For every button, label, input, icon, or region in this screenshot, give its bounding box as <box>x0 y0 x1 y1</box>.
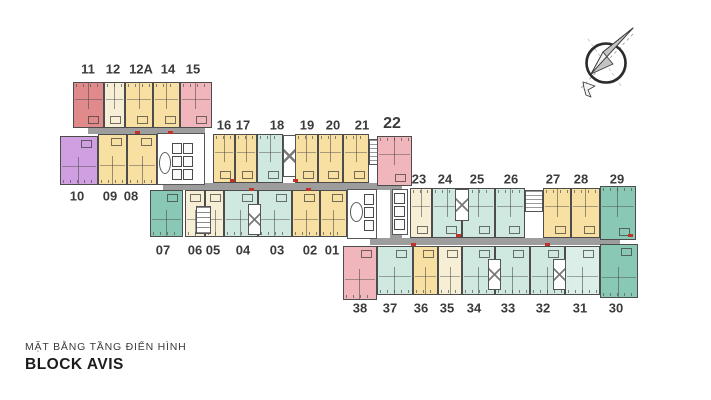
stair-shaft <box>196 206 211 234</box>
unit-01 <box>320 190 347 237</box>
bathroom-outline <box>110 116 121 124</box>
elevator-cab <box>172 169 182 180</box>
door-mark <box>135 131 140 134</box>
room-divider-h <box>127 99 151 100</box>
unit-label-34: 34 <box>467 301 481 316</box>
room-divider-h <box>155 99 178 100</box>
room-divider-h <box>602 206 634 207</box>
elevator-cab <box>172 156 182 167</box>
unit-35 <box>438 246 462 295</box>
unit-label-28: 28 <box>574 172 588 187</box>
unit-12A <box>125 82 153 128</box>
unit-19 <box>295 134 318 183</box>
unit-09 <box>98 134 127 185</box>
bathroom-outline <box>417 226 428 234</box>
elevator-cab <box>172 143 182 154</box>
plan-title-block: MẶT BẰNG TẦNG ĐIỂN HÌNH BLOCK AVIS <box>25 341 187 374</box>
room-divider-h <box>106 99 123 100</box>
bathroom-outline <box>423 250 434 258</box>
room-divider <box>166 210 167 236</box>
room-divider-h <box>100 165 125 166</box>
bathroom-outline <box>81 140 92 148</box>
corridor <box>370 238 620 245</box>
room-divider <box>359 269 360 299</box>
room-divider <box>356 135 357 162</box>
stair-shaft <box>455 189 469 221</box>
unit-label-29: 29 <box>610 172 624 187</box>
bathroom-outline <box>396 250 407 258</box>
unit-15 <box>180 82 212 128</box>
door-mark <box>628 234 633 237</box>
unit-label-07: 07 <box>156 243 170 258</box>
room-divider-h <box>379 276 411 277</box>
room-divider <box>478 189 479 217</box>
unit-14 <box>153 82 180 128</box>
room-divider <box>195 83 196 109</box>
unit-22 <box>377 136 412 186</box>
room-divider-h <box>567 276 598 277</box>
bathroom-outline <box>584 226 595 234</box>
balcony-ticks <box>261 232 289 235</box>
unit-label-12A: 12A <box>129 62 153 77</box>
bathroom-outline <box>583 250 594 258</box>
door-mark <box>456 234 461 237</box>
room-divider-h <box>345 279 375 280</box>
room-divider-h <box>75 99 102 100</box>
unit-label-19: 19 <box>300 118 314 133</box>
room-divider-h <box>260 219 290 220</box>
bathroom-outline <box>328 171 339 179</box>
bathroom-outline <box>395 174 406 182</box>
room-divider <box>512 267 513 294</box>
unit-label-08: 08 <box>124 189 138 204</box>
room-divider <box>306 135 307 162</box>
unit-label-05: 05 <box>206 243 220 258</box>
balcony-ticks <box>346 295 374 298</box>
elevator-cab <box>394 206 405 217</box>
room-divider <box>306 210 307 236</box>
room-divider <box>88 83 89 109</box>
room-divider-h <box>182 99 210 100</box>
bathroom-outline <box>88 116 99 124</box>
unit-label-17: 17 <box>236 118 250 133</box>
room-divider <box>330 135 331 162</box>
unit-label-21: 21 <box>355 118 369 133</box>
room-divider <box>447 189 448 217</box>
compass-needle-shade <box>591 28 633 74</box>
room-divider <box>78 157 79 184</box>
unit-38 <box>343 246 377 300</box>
unit-label-32: 32 <box>536 301 550 316</box>
bathroom-outline <box>555 226 566 234</box>
room-divider <box>240 210 241 236</box>
room-divider-h <box>379 154 410 155</box>
room-divider-h <box>237 152 255 153</box>
room-divider <box>246 135 247 162</box>
unit-26 <box>495 188 525 238</box>
unit-18 <box>257 134 283 183</box>
unit-21 <box>343 134 369 183</box>
room-divider <box>114 83 115 109</box>
bathroom-outline <box>242 171 253 179</box>
bathroom-outline <box>354 171 365 179</box>
balcony-ticks <box>63 180 95 183</box>
room-divider <box>215 210 216 236</box>
floor-plan-canvas: 111212A141510090816171819202122070605040… <box>0 0 711 400</box>
room-divider-h <box>345 152 367 153</box>
room-divider-h <box>322 219 345 220</box>
bathroom-outline <box>332 194 343 202</box>
bathroom-outline <box>447 250 458 258</box>
unit-08 <box>127 134 157 185</box>
room-divider <box>450 267 451 294</box>
room-divider <box>142 156 143 184</box>
door-mark <box>545 243 550 246</box>
bathroom-outline <box>137 116 148 124</box>
stair-oval <box>350 202 363 222</box>
room-divider <box>425 267 426 294</box>
bathroom-outline <box>513 250 524 258</box>
unit-28 <box>571 188 600 238</box>
room-divider <box>618 267 619 297</box>
unit-label-31: 31 <box>573 301 587 316</box>
bathroom-outline <box>268 171 279 179</box>
room-divider <box>139 83 140 109</box>
balcony-ticks <box>380 290 410 293</box>
unit-label-33: 33 <box>501 301 515 316</box>
bathroom-outline <box>196 116 207 124</box>
room-divider <box>166 83 167 109</box>
bathroom-outline <box>276 194 287 202</box>
door-mark <box>249 188 254 191</box>
vent-shaft <box>525 190 543 212</box>
room-divider <box>478 267 479 294</box>
unit-17 <box>235 134 257 183</box>
room-divider <box>394 267 395 294</box>
room-divider-h <box>320 152 341 153</box>
elevator-cab <box>394 193 405 204</box>
unit-label-25: 25 <box>470 172 484 187</box>
unit-label-04: 04 <box>236 243 250 258</box>
stair-shaft <box>248 204 261 235</box>
unit-label-12: 12 <box>106 62 120 77</box>
room-divider-h <box>215 152 233 153</box>
stair-shaft <box>283 135 296 177</box>
door-mark <box>306 188 311 191</box>
elevator-cab <box>364 220 374 231</box>
unit-03 <box>258 190 292 237</box>
elevator-cab <box>394 219 405 230</box>
unit-23 <box>410 188 432 238</box>
door-mark <box>230 179 235 182</box>
room-divider <box>224 135 225 162</box>
bathroom-outline <box>111 138 122 146</box>
room-divider <box>112 156 113 184</box>
unit-31 <box>565 246 600 295</box>
unit-label-23: 23 <box>412 172 426 187</box>
elevator-cab <box>364 194 374 205</box>
room-divider <box>585 189 586 217</box>
bathroom-outline <box>220 171 231 179</box>
room-divider <box>274 210 275 236</box>
unit-label-36: 36 <box>414 301 428 316</box>
room-divider-h <box>294 219 318 220</box>
bathroom-outline <box>479 250 490 258</box>
unit-30 <box>600 244 638 298</box>
door-mark <box>411 243 416 246</box>
unit-label-06: 06 <box>188 243 202 258</box>
unit-label-15: 15 <box>186 62 200 77</box>
bathroom-outline <box>621 248 632 256</box>
bathroom-outline <box>361 250 372 258</box>
unit-07 <box>150 190 183 237</box>
room-divider-h <box>297 152 316 153</box>
unit-11 <box>73 82 104 128</box>
bathroom-outline <box>167 194 178 202</box>
unit-label-20: 20 <box>326 118 340 133</box>
unit-20 <box>318 134 343 183</box>
unit-label-22: 22 <box>383 115 401 133</box>
bathroom-outline <box>446 226 457 234</box>
unit-02 <box>292 190 320 237</box>
door-mark <box>293 179 298 182</box>
stair-shaft <box>488 259 501 290</box>
bathroom-outline <box>141 138 152 146</box>
plan-title: BLOCK AVIS <box>25 356 187 374</box>
north-compass-icon <box>573 18 645 102</box>
room-divider-h <box>415 276 436 277</box>
unit-label-35: 35 <box>440 301 454 316</box>
stair-oval <box>159 152 171 174</box>
compass-tail-arrow <box>583 82 595 97</box>
room-divider-h <box>152 219 181 220</box>
room-divider <box>557 189 558 217</box>
unit-37 <box>377 246 413 295</box>
unit-label-10: 10 <box>70 189 84 204</box>
unit-label-16: 16 <box>217 118 231 133</box>
room-divider <box>394 137 395 165</box>
elevator-cab <box>183 156 193 167</box>
room-divider-h <box>545 206 569 207</box>
unit-label-01: 01 <box>325 243 339 258</box>
unit-label-11: 11 <box>81 62 95 77</box>
bathroom-outline <box>165 116 176 124</box>
room-divider-h <box>412 206 430 207</box>
unit-label-02: 02 <box>303 243 317 258</box>
unit-12 <box>104 82 125 128</box>
bathroom-outline <box>479 226 490 234</box>
unit-label-14: 14 <box>161 62 175 77</box>
room-divider-h <box>259 152 281 153</box>
room-divider-h <box>602 277 636 278</box>
room-divider-h <box>573 206 598 207</box>
vent-shaft <box>369 139 378 165</box>
unit-29 <box>600 186 636 240</box>
unit-10 <box>60 136 98 185</box>
bathroom-outline <box>509 226 520 234</box>
unit-36 <box>413 246 438 295</box>
unit-label-26: 26 <box>504 172 518 187</box>
door-mark <box>168 131 173 134</box>
room-divider-h <box>62 166 96 167</box>
room-divider-h <box>497 206 523 207</box>
elevator-cab <box>364 207 374 218</box>
unit-27 <box>543 188 571 238</box>
unit-16 <box>213 134 235 183</box>
room-divider <box>510 189 511 217</box>
bathroom-outline <box>304 194 315 202</box>
plan-subtitle: MẶT BẰNG TẦNG ĐIỂN HÌNH <box>25 341 187 353</box>
room-divider-h <box>129 165 155 166</box>
stair-shaft <box>553 259 566 290</box>
balcony-ticks <box>603 293 635 296</box>
balcony-ticks <box>603 188 633 191</box>
unit-label-03: 03 <box>270 243 284 258</box>
room-divider <box>270 135 271 162</box>
bathroom-outline <box>303 171 314 179</box>
unit-label-37: 37 <box>383 301 397 316</box>
bathroom-outline <box>190 194 201 202</box>
room-divider-h <box>497 276 528 277</box>
unit-label-27: 27 <box>546 172 560 187</box>
unit-label-09: 09 <box>103 189 117 204</box>
room-divider <box>617 187 618 217</box>
bathroom-outline <box>210 194 221 202</box>
room-divider <box>582 267 583 294</box>
elevator-cab <box>183 169 193 180</box>
bathroom-outline <box>242 194 253 202</box>
room-divider <box>547 267 548 294</box>
unit-label-18: 18 <box>270 118 284 133</box>
room-divider-h <box>440 276 460 277</box>
unit-label-24: 24 <box>438 172 452 187</box>
room-divider <box>333 210 334 236</box>
elevator-cab <box>183 143 193 154</box>
unit-label-30: 30 <box>609 301 623 316</box>
room-divider <box>421 189 422 217</box>
unit-label-38: 38 <box>353 301 367 316</box>
bathroom-outline <box>548 250 559 258</box>
balcony-ticks <box>183 84 209 87</box>
